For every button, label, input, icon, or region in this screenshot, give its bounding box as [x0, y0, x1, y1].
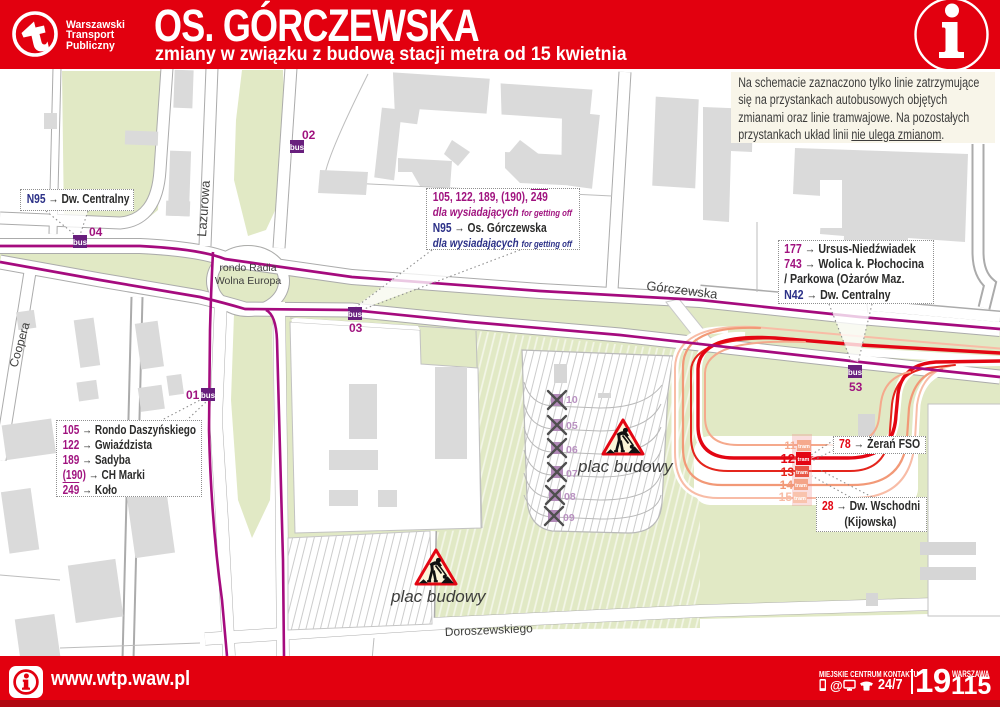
- svg-text:04: 04: [89, 225, 103, 239]
- svg-text:10: 10: [566, 394, 578, 406]
- svg-text:plac budowy: plac budowy: [577, 457, 674, 476]
- svg-text:02: 02: [302, 128, 316, 142]
- svg-text:rondo Radia: rondo Radia: [219, 262, 276, 274]
- svg-text:bus: bus: [73, 238, 88, 247]
- svg-text:bus: bus: [348, 310, 363, 319]
- svg-text:08: 08: [564, 491, 576, 503]
- svg-text:tram: tram: [796, 470, 808, 476]
- svg-text:tram: tram: [798, 444, 810, 450]
- svg-text:09: 09: [563, 512, 575, 524]
- svg-text:12: 12: [781, 451, 795, 466]
- svg-text:01: 01: [186, 388, 200, 402]
- svg-text:plac budowy: plac budowy: [390, 587, 487, 606]
- svg-text:tram: tram: [798, 457, 810, 463]
- svg-text:15: 15: [779, 490, 793, 504]
- svg-text:03: 03: [349, 321, 363, 335]
- svg-text:bus: bus: [290, 143, 305, 152]
- svg-text:53: 53: [849, 380, 863, 394]
- svg-text:bus: bus: [201, 391, 216, 400]
- svg-text:06: 06: [566, 444, 578, 456]
- svg-text:@: @: [830, 679, 843, 692]
- svg-text:Wolna Europa: Wolna Europa: [215, 275, 282, 287]
- svg-text:07: 07: [566, 468, 578, 480]
- svg-text:tram: tram: [795, 483, 807, 489]
- svg-text:bus: bus: [848, 368, 863, 377]
- svg-text:tram: tram: [794, 496, 806, 502]
- svg-text:05: 05: [566, 420, 578, 432]
- svg-text:13: 13: [781, 465, 795, 479]
